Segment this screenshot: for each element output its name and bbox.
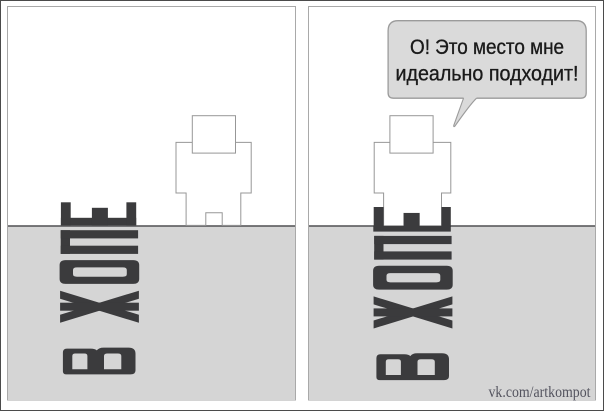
svg-text:vk.com/artkompot: vk.com/artkompot xyxy=(489,384,592,401)
svg-text:идеально подходит!: идеально подходит! xyxy=(396,62,579,86)
svg-text:О! Это место мне: О! Это место мне xyxy=(410,35,564,59)
